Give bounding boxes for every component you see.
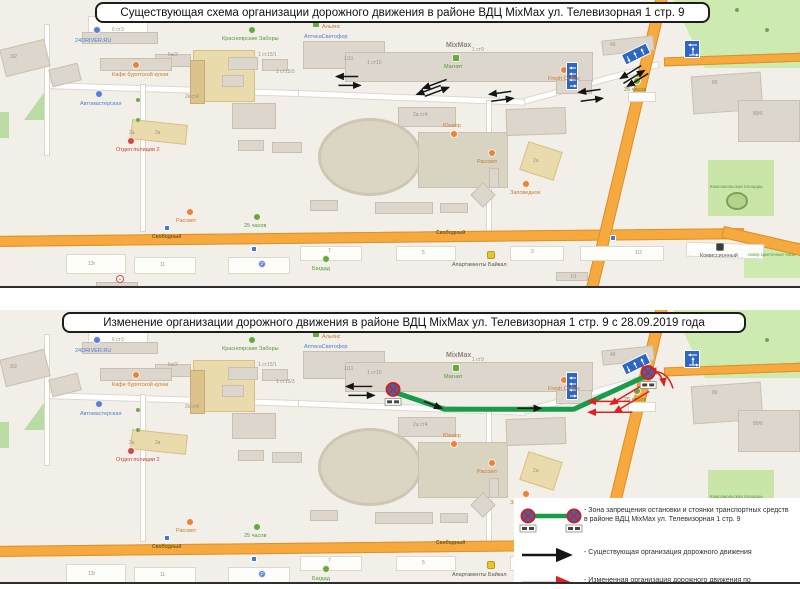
clock-24-icon bbox=[633, 77, 641, 85]
legend-item: - Существующая организация дорожного дви… bbox=[518, 548, 800, 567]
building bbox=[440, 203, 468, 213]
poi-label: Альянс bbox=[322, 334, 341, 340]
building bbox=[232, 413, 276, 439]
building-number: 2а bbox=[533, 468, 539, 474]
no-stopping-sign-icon bbox=[566, 510, 582, 533]
building-number: 11 bbox=[160, 262, 165, 268]
stadium-oval bbox=[318, 118, 422, 196]
building bbox=[510, 246, 564, 261]
legend-item: - Зона запрещения остановки и стоянки тр… bbox=[518, 506, 800, 539]
building bbox=[738, 410, 800, 452]
building-number: 46 bbox=[610, 42, 616, 48]
carwash-icon bbox=[186, 208, 194, 216]
car-service-icon bbox=[93, 336, 101, 344]
building bbox=[272, 142, 302, 153]
poi-label: Багдад bbox=[312, 266, 330, 272]
changed-scheme-panel: + P bbox=[0, 310, 800, 584]
building-number: 1 ст15/1 bbox=[258, 52, 277, 58]
restaurant-icon bbox=[132, 371, 140, 379]
poi-label: 25 часов bbox=[244, 533, 266, 539]
poi-label: Отдел полиции 2 bbox=[116, 457, 160, 463]
poi-label: Кафе бурятской кухни bbox=[112, 72, 168, 78]
poi-label: Магнит bbox=[444, 64, 462, 70]
poi-label: Кафе бурятской кухни bbox=[112, 382, 168, 388]
legend-text-line: - Существующая организация дорожного дви… bbox=[584, 548, 752, 557]
poi-label: Автомастерская bbox=[80, 411, 121, 417]
police-icon bbox=[127, 447, 135, 455]
legend-text: - Зона запрещения остановки и стоянки тр… bbox=[584, 506, 789, 524]
no-stopping-zone-line bbox=[518, 506, 584, 534]
magnit-store-icon bbox=[452, 54, 460, 62]
fence-shop-icon bbox=[248, 336, 256, 344]
poi-label: Fresh Coffee bbox=[548, 386, 580, 392]
carwash-icon bbox=[186, 518, 194, 526]
building bbox=[506, 417, 567, 446]
poi-label: Юниор bbox=[443, 123, 461, 129]
legend-text-line: в районе ВДЦ MixMax ул. Телевизорная 1 с… bbox=[584, 515, 789, 524]
poi-label: Красноярские Заборы bbox=[222, 36, 279, 42]
building bbox=[519, 141, 563, 181]
clock-24-icon bbox=[253, 213, 261, 221]
poi-label: АптекаСветофор bbox=[304, 34, 348, 40]
legend-symbol-no-stopping-zone bbox=[518, 506, 584, 539]
green-patch bbox=[0, 112, 9, 138]
building bbox=[272, 452, 302, 463]
changed-traffic-arrow bbox=[518, 576, 584, 584]
poi-label: Заповедное bbox=[510, 190, 541, 196]
legend-text-line: - Зона запрещения остановки и стоянки тр… bbox=[584, 506, 789, 515]
parking-icon: P bbox=[258, 570, 266, 578]
building-number: 1 ст15/3 bbox=[276, 379, 295, 385]
building-number: 6 ст3 bbox=[112, 337, 124, 343]
poi-label: Рассвет bbox=[176, 528, 196, 534]
poi-label: 24DRIVER.RU bbox=[75, 348, 111, 354]
poi-label: Комиссионный bbox=[700, 253, 738, 259]
building-number: 1/1 bbox=[570, 274, 577, 280]
scheme-title: Изменение организации дорожного движения… bbox=[62, 312, 746, 333]
taxi-icon bbox=[487, 251, 495, 259]
building bbox=[310, 200, 338, 211]
tree-icon bbox=[735, 8, 739, 12]
building bbox=[238, 450, 264, 461]
poi-label: Апартаменты Байкал bbox=[452, 572, 507, 578]
bus-stop-icon bbox=[251, 556, 257, 562]
building bbox=[396, 246, 456, 261]
road-label: Свободный bbox=[152, 544, 181, 550]
building-number: 5 bbox=[422, 250, 425, 256]
building bbox=[628, 402, 656, 412]
legend-text: - Измененная организация дорожного движе… bbox=[584, 576, 751, 584]
building-number: 1 ст9 bbox=[472, 47, 484, 53]
building bbox=[66, 254, 126, 274]
parking-icon: P bbox=[258, 260, 266, 268]
green-triangle bbox=[24, 400, 46, 430]
poi-label: сквер Цветочные часы bbox=[748, 252, 796, 257]
building-number: 3 bbox=[531, 249, 534, 255]
poi-label: Рассвет bbox=[477, 469, 497, 475]
traffic-scheme-document: { "titles": { "top": "Существующая схема… bbox=[0, 0, 800, 589]
building bbox=[396, 556, 456, 571]
building-number: 89 bbox=[712, 390, 718, 396]
no-stopping-sign-icon bbox=[520, 510, 536, 533]
building-number: 1/2 bbox=[635, 250, 642, 256]
building-number: 1/11 bbox=[344, 366, 353, 372]
poi-label: Отдел полиции 2 bbox=[116, 147, 160, 153]
building bbox=[232, 103, 276, 129]
bus-stop-icon bbox=[251, 246, 257, 252]
side-street bbox=[140, 394, 146, 542]
poi-label: 25 часов bbox=[624, 87, 646, 93]
poi-label: MixMax bbox=[446, 353, 471, 359]
building bbox=[66, 564, 126, 584]
legend-item: - Измененная организация дорожного движе… bbox=[518, 576, 800, 584]
building-number: 46 bbox=[610, 352, 616, 358]
restaurant-icon bbox=[132, 61, 140, 69]
building-number: 13г bbox=[88, 261, 95, 267]
building-number: 1 ст10 bbox=[367, 370, 382, 376]
bagdad-icon bbox=[322, 255, 330, 263]
restaurant-icon bbox=[522, 490, 530, 498]
poi-label: Красноярские Заборы bbox=[222, 346, 279, 352]
building bbox=[489, 168, 499, 188]
poi-label: Рассвет bbox=[176, 218, 196, 224]
building-number: 7 bbox=[328, 558, 331, 564]
green-patch bbox=[0, 422, 9, 448]
lane-arrows bbox=[685, 41, 701, 59]
building-number: 2а bbox=[129, 440, 135, 446]
building-number: 2в bbox=[155, 440, 160, 446]
building-number: 2а ст4 bbox=[413, 422, 428, 428]
building bbox=[738, 100, 800, 142]
building-number: 2а bbox=[533, 158, 539, 164]
tree-icon bbox=[136, 98, 140, 102]
poi-label: MixMax bbox=[446, 43, 471, 49]
taxi-icon bbox=[487, 561, 495, 569]
poi-label: Багдад bbox=[312, 576, 330, 582]
building bbox=[238, 140, 264, 151]
road-label: Свободный bbox=[436, 540, 465, 546]
base-map: + P bbox=[0, 0, 800, 286]
building-number: 2в bbox=[155, 130, 160, 136]
road-svobodny bbox=[0, 228, 744, 247]
tree-icon bbox=[136, 118, 140, 122]
building bbox=[556, 582, 588, 584]
poi-label: 24DRIVER.RU bbox=[75, 38, 111, 44]
building bbox=[375, 512, 433, 524]
poi-label: 25 часов bbox=[244, 223, 266, 229]
building-number: 1 ст10 bbox=[367, 60, 382, 66]
tree-icon bbox=[136, 428, 140, 432]
building-number: 1/11 bbox=[344, 56, 353, 62]
legend: - Зона запрещения остановки и стоянки тр… bbox=[518, 506, 800, 584]
green-triangle bbox=[24, 90, 46, 120]
building bbox=[628, 92, 656, 102]
legend-text-line: - Измененная организация дорожного движе… bbox=[584, 576, 751, 584]
building-number: 2к ст4 bbox=[185, 94, 199, 100]
building-number: 89 bbox=[712, 80, 718, 86]
bagdad-icon bbox=[322, 565, 330, 573]
clock-24-icon bbox=[253, 523, 261, 531]
building-number: 2а bbox=[129, 130, 135, 136]
building bbox=[300, 246, 362, 261]
poi-label: Альянс bbox=[322, 24, 341, 30]
legend-symbol-changed-arrow bbox=[518, 576, 584, 584]
police-icon bbox=[127, 137, 135, 145]
clock-24-icon bbox=[633, 387, 641, 395]
yunior-icon bbox=[450, 130, 458, 138]
legend-text: - Существующая организация дорожного дви… bbox=[584, 548, 752, 557]
building bbox=[96, 282, 138, 288]
poi-label: Автомастерская bbox=[80, 101, 121, 107]
building bbox=[310, 510, 338, 521]
building bbox=[506, 107, 567, 136]
restaurant-icon bbox=[522, 180, 530, 188]
carwash-icon bbox=[488, 149, 496, 157]
fence-shop-icon bbox=[248, 26, 256, 34]
stadium-oval bbox=[318, 428, 422, 506]
building bbox=[440, 513, 468, 523]
poi-label: Fresh Coffee bbox=[548, 76, 580, 82]
watch-icon bbox=[716, 243, 724, 251]
building bbox=[375, 202, 433, 214]
poi-label: АптекаСветофор bbox=[304, 344, 348, 350]
building bbox=[519, 451, 563, 491]
building bbox=[580, 246, 664, 261]
tree-icon bbox=[765, 28, 769, 32]
existing-scheme-panel: + P bbox=[0, 0, 800, 288]
building-number: 2а ст4 bbox=[413, 112, 428, 118]
building-number: 7 bbox=[328, 248, 331, 254]
building bbox=[228, 367, 258, 380]
poi-label: Апартаменты Байкал bbox=[452, 262, 507, 268]
magnit-store-icon bbox=[452, 364, 460, 372]
poi-label: Магнит bbox=[444, 374, 462, 380]
building-number: 1 ст15/3 bbox=[276, 69, 295, 75]
car-service-icon bbox=[93, 26, 101, 34]
building-number: 89/6 bbox=[753, 421, 763, 427]
building-number: 2к ст4 bbox=[185, 404, 199, 410]
carwash-icon bbox=[488, 459, 496, 467]
bus-stop-icon bbox=[164, 535, 170, 541]
building-number: 89/6 bbox=[753, 111, 763, 117]
building-number: 3/2 bbox=[10, 54, 17, 60]
scheme-title: Существующая схема организации дорожного… bbox=[95, 2, 710, 23]
building-number: 6 ст3 bbox=[112, 27, 124, 33]
bus-stop-icon bbox=[610, 235, 616, 241]
building bbox=[300, 556, 362, 571]
tree-icon bbox=[136, 408, 140, 412]
poi-label: Комсомольская площадь bbox=[710, 184, 772, 189]
building bbox=[222, 75, 244, 87]
lane-directions-sign-icon bbox=[684, 40, 700, 58]
poi-label: Юниор bbox=[443, 433, 461, 439]
poi-label: 25 часов bbox=[624, 397, 646, 403]
square-emblem-icon bbox=[726, 192, 748, 210]
building-number: 1 ст9 bbox=[472, 357, 484, 363]
bus-stop-icon bbox=[164, 225, 170, 231]
lane-directions-sign-icon bbox=[684, 350, 700, 368]
side-street bbox=[140, 84, 146, 232]
tree-icon bbox=[765, 338, 769, 342]
building-number: 11 bbox=[160, 572, 165, 578]
road-label: Свободный bbox=[436, 230, 465, 236]
medical-icon: + bbox=[116, 275, 124, 283]
poi-label: Рассвет bbox=[477, 159, 497, 165]
road-televizornaya bbox=[44, 392, 302, 407]
road-televizornaya bbox=[44, 82, 302, 97]
building bbox=[222, 385, 244, 397]
building-number: 6а/2 bbox=[168, 52, 178, 58]
wrench-icon bbox=[95, 400, 103, 408]
building-number: 5 bbox=[422, 560, 425, 566]
wrench-icon bbox=[95, 90, 103, 98]
building-number: 1 ст15/1 bbox=[258, 362, 277, 368]
existing-traffic-arrow bbox=[518, 548, 584, 562]
lane-arrows bbox=[685, 351, 701, 369]
building-number: 13г bbox=[88, 571, 95, 577]
building bbox=[228, 57, 258, 70]
building-number: 6а/2 bbox=[168, 362, 178, 368]
road-label: Свободный bbox=[152, 234, 181, 240]
building-number: 3/2 bbox=[10, 364, 17, 370]
legend-symbol-existing-arrow bbox=[518, 548, 584, 567]
yunior-icon bbox=[450, 440, 458, 448]
building bbox=[489, 478, 499, 498]
